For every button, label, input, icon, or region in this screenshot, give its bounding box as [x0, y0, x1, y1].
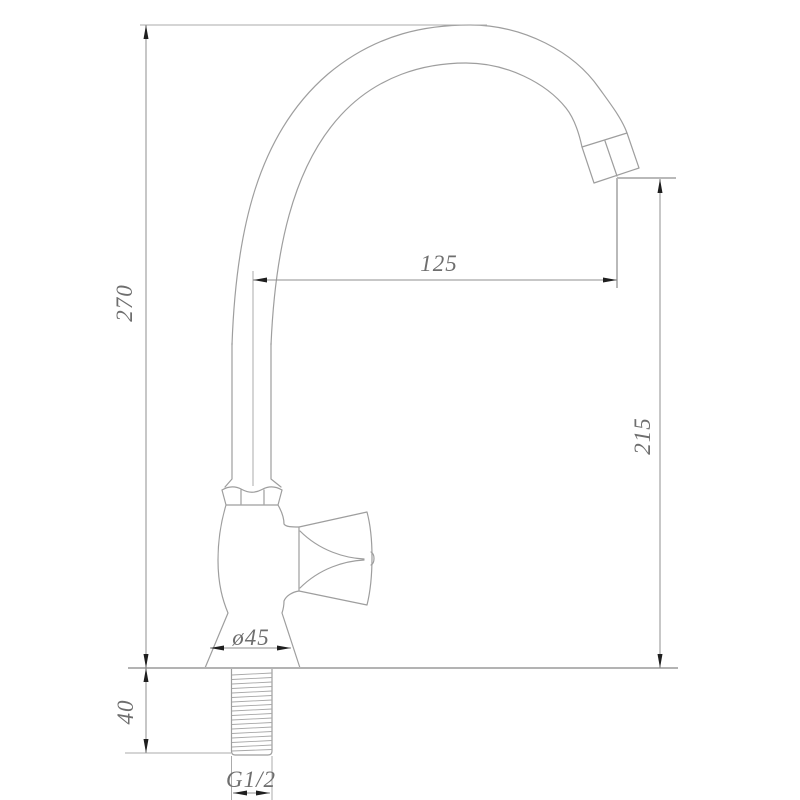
- arrowhead-up-icon: [658, 179, 663, 193]
- hex-nut-top: [222, 487, 282, 492]
- riser-left-edge: [225, 343, 232, 487]
- dimension-label-215: 215: [630, 417, 655, 455]
- arrowhead-down-icon: [658, 654, 663, 668]
- dimension-label-125: 125: [420, 251, 458, 276]
- arrowhead-right-icon: [277, 646, 291, 651]
- dimension-spout-reach: 125: [253, 178, 617, 486]
- dimension-label-270: 270: [112, 284, 137, 322]
- technical-drawing-page: 270 125 215 ø45: [0, 0, 800, 800]
- arrowhead-up-icon: [144, 25, 149, 39]
- spout-outer-arc: [232, 25, 627, 345]
- dimension-label-dia45: ø45: [231, 625, 270, 650]
- arrowhead-down-icon: [144, 654, 149, 668]
- body-right-lower-edge: [282, 591, 300, 668]
- dimension-label-40: 40: [113, 700, 138, 725]
- dimension-base-diameter: ø45: [210, 625, 291, 651]
- dimension-spout-height: 215: [617, 178, 676, 668]
- arrowhead-left-icon: [253, 278, 267, 283]
- handle-knob-lower-curve: [300, 560, 364, 588]
- riser-right-edge: [271, 343, 281, 487]
- arrowhead-down-icon: [144, 739, 149, 753]
- handle-knob-upper-curve: [300, 531, 364, 559]
- dimension-label-g12: G1/2: [226, 767, 276, 792]
- arrowhead-right-icon: [603, 278, 617, 283]
- dimension-thread-size: G1/2: [226, 756, 276, 800]
- arrowhead-up-icon: [144, 668, 149, 682]
- faucet-drawing-svg: 270 125 215 ø45: [0, 0, 800, 800]
- dimension-shank-length: 40: [113, 668, 231, 753]
- body-right-upper-edge: [278, 505, 299, 527]
- spout-outlet-seam: [605, 141, 617, 176]
- shank-thread-lines: [232, 673, 272, 751]
- faucet-outline: [205, 25, 639, 755]
- spout-inner-arc: [271, 63, 582, 345]
- body-left-edge: [205, 505, 228, 668]
